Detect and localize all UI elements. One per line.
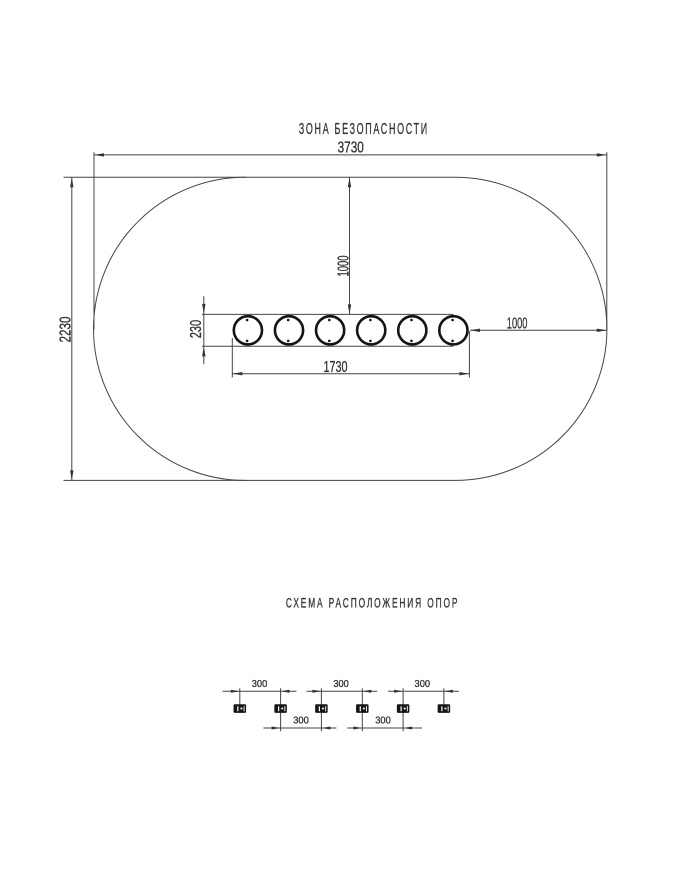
svg-text:230: 230 [188, 320, 205, 339]
svg-text:300: 300 [415, 678, 431, 690]
svg-text:1000: 1000 [335, 255, 352, 276]
svg-text:2230: 2230 [58, 316, 75, 342]
svg-text:3730: 3730 [338, 140, 364, 157]
svg-text:300: 300 [252, 678, 268, 690]
svg-text:300: 300 [333, 678, 349, 690]
svg-text:1730: 1730 [324, 359, 348, 376]
svg-text:300: 300 [293, 715, 309, 727]
svg-text:300: 300 [375, 715, 391, 727]
svg-text:ЗОНА БЕЗОПАСНОСТИ: ЗОНА БЕЗОПАСНОСТИ [299, 121, 429, 138]
svg-text:СХЕМА РАСПОЛОЖЕНИЯ ОПОР: СХЕМА РАСПОЛОЖЕНИЯ ОПОР [286, 596, 459, 611]
svg-text:1000: 1000 [507, 315, 528, 332]
